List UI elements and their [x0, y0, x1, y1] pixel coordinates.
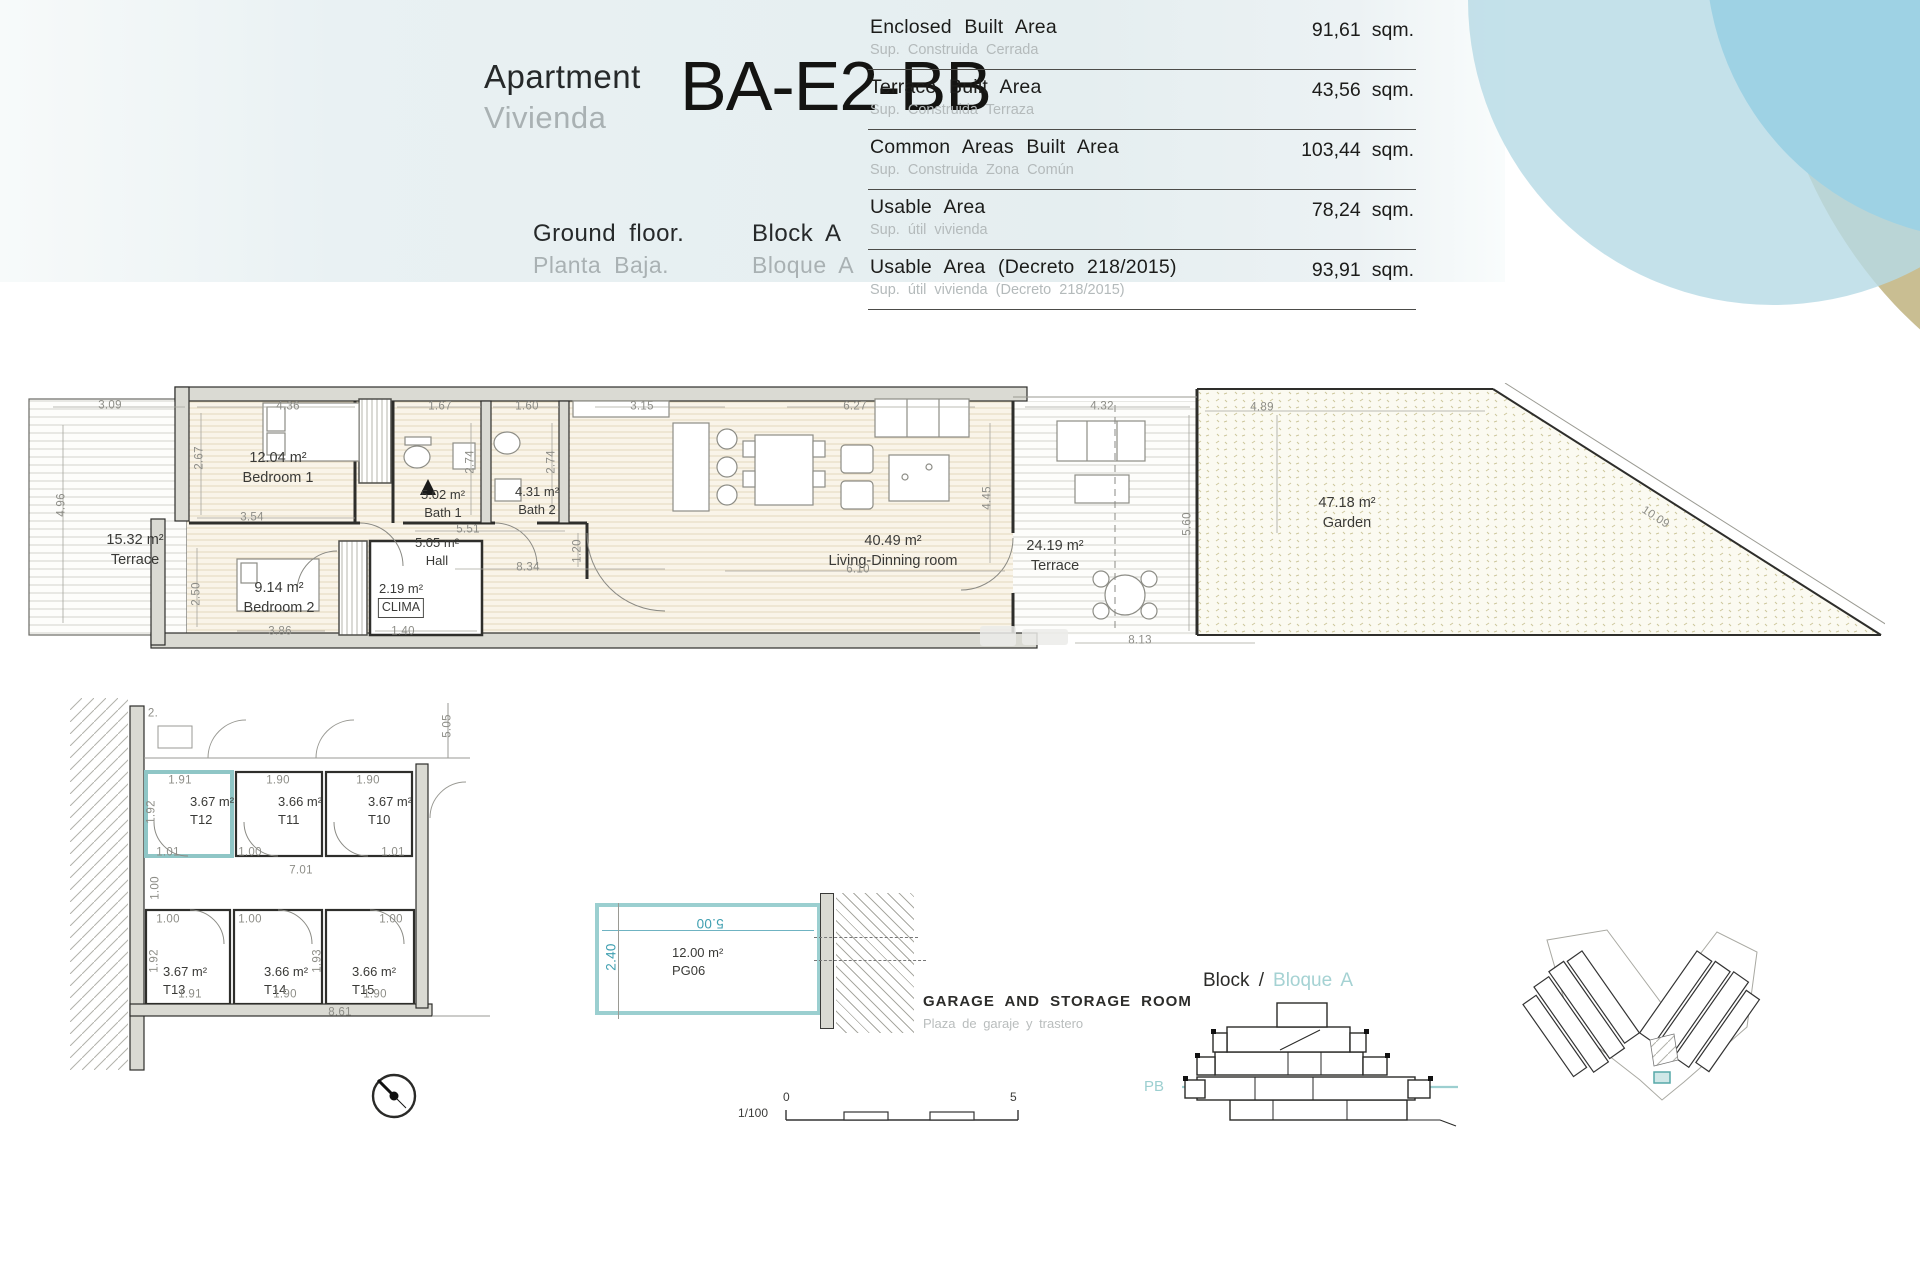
table-row: Usable Area Sup. útil vivienda 78,24sqm.: [868, 190, 1416, 250]
dim-label: 2.67: [194, 446, 206, 470]
room-area: 47.18 m²: [1318, 493, 1375, 513]
row-label-es: Sup. útil vivienda: [870, 222, 988, 238]
floor-label-en: Ground floor.: [533, 220, 684, 248]
table-row: Common Areas Built Area Sup. Construida …: [868, 130, 1416, 190]
dim-label: 1.92: [146, 800, 158, 824]
section-title: Block / Bloque A: [1203, 970, 1353, 992]
dim-label: 2.74: [546, 450, 558, 474]
room-name: T11: [278, 811, 322, 829]
room-label-bath2: 4.31 m² Bath 2: [515, 483, 559, 519]
room-area: 12.04 m²: [243, 448, 314, 468]
room-area: 40.49 m²: [829, 531, 958, 551]
room-area: 24.19 m²: [1026, 536, 1083, 556]
room-area: 9.14 m²: [244, 578, 315, 598]
room-name: CLIMA: [378, 598, 424, 618]
room-area: 5.05 m²: [415, 534, 459, 552]
room-area: 3.67 m²: [163, 963, 207, 981]
room-name: Bedroom 2: [244, 598, 315, 618]
garage-label: 12.00 m² PG06: [672, 944, 723, 980]
apartment-label-en: Apartment: [484, 58, 641, 96]
room-label-bedroom2: 9.14 m² Bedroom 2: [244, 578, 315, 619]
dim-label: 5.60: [1182, 512, 1194, 536]
row-label-en: Common Areas Built Area: [870, 136, 1119, 159]
dim-label: 2.: [148, 708, 158, 720]
dim-label: 2.74: [465, 450, 477, 474]
garage-code: PG06: [672, 962, 723, 980]
room-name: T12: [190, 811, 234, 829]
row-label-en: Terrace Built Area: [870, 76, 1042, 99]
block-label-en: Block A: [752, 220, 842, 248]
site-plan-drawing: [1512, 922, 1772, 1122]
dim-label: 7.01: [289, 865, 313, 877]
garage-title-es: Plaza de garaje y trastero: [923, 1016, 1083, 1031]
room-area: 3.66 m²: [352, 963, 396, 981]
room-name: Hall: [415, 552, 459, 570]
garage-dashed1: [814, 937, 918, 938]
room-area: 15.32 m²: [106, 530, 163, 550]
row-value: 43,56: [1312, 79, 1361, 102]
plan-sheet: Apartment Vivienda BA-E2-BB Ground floor…: [0, 0, 1920, 1280]
dim-label: 4.36: [276, 401, 300, 413]
dim-label: 1.20: [572, 539, 584, 563]
row-label-en: Enclosed Built Area: [870, 16, 1057, 39]
row-unit: sqm.: [1372, 19, 1414, 42]
block-label-es: Bloque A: [752, 252, 854, 279]
room-area: 3.67 m²: [190, 793, 234, 811]
room-area: 5.02 m²: [421, 486, 465, 504]
storage-wall-right: [416, 764, 428, 1008]
dim-label: 1.90: [266, 775, 290, 787]
row-value: 91,61: [1312, 19, 1361, 42]
row-value: 93,91: [1312, 259, 1361, 282]
dim-label: 1.93: [312, 949, 324, 973]
garage-dashed2: [814, 960, 926, 961]
scale-ratio: 1/100: [738, 1106, 768, 1120]
dim-label: 5.00: [696, 916, 723, 930]
storage-wall-bottom: [130, 1004, 432, 1016]
room-label-bedroom1: 12.04 m² Bedroom 1: [243, 448, 314, 489]
garage-hatch: [836, 893, 914, 1033]
dim-label: 1.92: [149, 949, 161, 973]
site-unit-marker: [1654, 1072, 1670, 1083]
room-name: Bath 2: [515, 501, 559, 519]
storage-right-fragment: [430, 703, 490, 1016]
room-area: 2.19 m²: [378, 580, 424, 598]
room-name: T10: [368, 811, 412, 829]
room-label-bath1: 5.02 m² Bath 1: [421, 486, 465, 522]
room-area: 4.31 m²: [515, 483, 559, 501]
room-label-garden: 47.18 m² Garden: [1318, 493, 1375, 534]
block-section-drawing: [1140, 1000, 1470, 1132]
dim-label: 3.54: [240, 512, 264, 524]
dim-label: 8.61: [328, 1007, 352, 1019]
room-name: Bath 1: [421, 504, 465, 522]
storage-label-t10: 3.67 m² T10: [368, 793, 412, 829]
table-row: Usable Area (Decreto 218/2015) Sup. útil…: [868, 250, 1416, 310]
dim-label: 1.00: [238, 847, 262, 859]
room-label-terrace1: 15.32 m² Terrace: [106, 530, 163, 571]
dim-label: 4.45: [982, 486, 994, 510]
room-area: 3.66 m²: [264, 963, 308, 981]
areas-table: Enclosed Built Area Sup. Construida Cerr…: [868, 10, 1416, 310]
row-label-en: Usable Area: [870, 196, 988, 219]
scale-bar: [778, 1100, 1028, 1130]
dim-label: 5.51: [456, 524, 480, 536]
dim-label: 1.00: [150, 876, 162, 900]
dim-label: 3.09: [98, 400, 122, 412]
dim-label: 1.01: [381, 847, 405, 859]
room-name: Garden: [1318, 513, 1375, 533]
room-name: Bedroom 1: [243, 468, 314, 488]
dim-label: 5.05: [442, 714, 454, 738]
garage-area: 12.00 m²: [672, 944, 723, 962]
storage-label-t12: 3.67 m² T12: [190, 793, 234, 829]
row-label-en: Usable Area (Decreto 218/2015): [870, 256, 1177, 279]
room-area: 3.67 m²: [368, 793, 412, 811]
row-unit: sqm.: [1372, 79, 1414, 102]
dim-label: 1.01: [156, 847, 180, 859]
row-label-es: Sup. Construida Terraza: [870, 102, 1042, 118]
storage-top-arcs: [144, 720, 470, 758]
storage-label-t11: 3.66 m² T11: [278, 793, 322, 829]
dim-label: 8.34: [516, 562, 540, 574]
room-name: Terrace: [1026, 556, 1083, 576]
apartment-label-es: Vivienda: [484, 100, 606, 136]
row-unit: sqm.: [1372, 259, 1414, 282]
floor-label-es: Planta Baja.: [533, 252, 669, 279]
row-value: 78,24: [1312, 199, 1361, 222]
dim-label: 8.13: [1128, 635, 1152, 647]
row-value: 103,44: [1301, 139, 1361, 162]
dim-label: 3.15: [630, 401, 654, 413]
dim-label: 1.91: [178, 989, 202, 1001]
dim-label: 1.00: [379, 914, 403, 926]
dim-label: 2.40: [604, 943, 618, 970]
dim-label: 4.89: [1250, 402, 1274, 414]
row-unit: sqm.: [1372, 139, 1414, 162]
dim-label: 6.27: [843, 401, 867, 413]
room-label-clima: 2.19 m² CLIMA: [378, 580, 424, 618]
room-area: 3.66 m²: [278, 793, 322, 811]
row-label-es: Sup. Construida Zona Común: [870, 162, 1119, 178]
dim-label: 2.50: [191, 582, 203, 606]
north-arrow-icon: [366, 1068, 422, 1124]
dim-label: 1.90: [363, 989, 387, 1001]
garage-wall: [820, 893, 834, 1029]
storage-plan-drawing: [70, 698, 500, 1080]
room-label-hall: 5.05 m² Hall: [415, 534, 459, 570]
row-label-es: Sup. útil vivienda (Decreto 218/2015): [870, 282, 1177, 298]
watermark: [1022, 629, 1068, 645]
dim-label: 1.90: [356, 775, 380, 787]
dim-label: 6.10: [846, 564, 870, 576]
section-title-es: Bloque A: [1273, 970, 1353, 992]
dim-label: 4.32: [1090, 401, 1114, 413]
corner-pale-circle: [1468, 0, 1920, 305]
dim-label: 1.90: [273, 989, 297, 1001]
room-label-terrace2: 24.19 m² Terrace: [1026, 536, 1083, 577]
section-title-en: Block /: [1203, 970, 1264, 992]
dim-label: 1.40: [391, 626, 415, 638]
table-row: Enclosed Built Area Sup. Construida Cerr…: [868, 10, 1416, 70]
room-name: Terrace: [106, 550, 163, 570]
row-label-es: Sup. Construida Cerrada: [870, 42, 1057, 58]
dim-label: 1.60: [515, 401, 539, 413]
dim-label: 3.86: [268, 626, 292, 638]
table-row: Terrace Built Area Sup. Construida Terra…: [868, 70, 1416, 130]
dim-label: 1.00: [156, 914, 180, 926]
dim-label: 1.91: [168, 775, 192, 787]
dim-label: 1.67: [428, 401, 452, 413]
watermark: [980, 626, 1016, 646]
corner-blue-circle: [1706, 0, 1920, 240]
row-unit: sqm.: [1372, 199, 1414, 222]
dim-label: 1.00: [238, 914, 262, 926]
dim-label: 4.96: [56, 493, 68, 517]
